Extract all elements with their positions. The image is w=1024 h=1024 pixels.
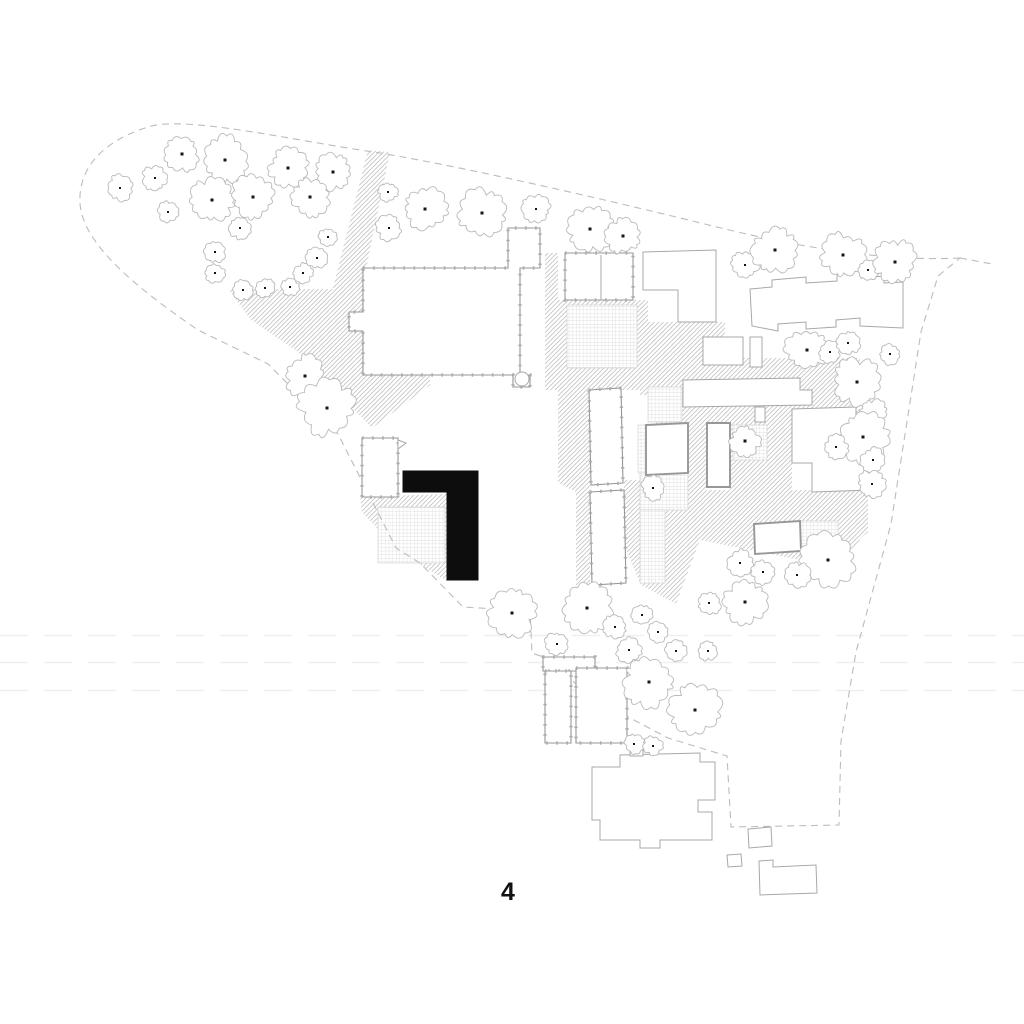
tree-trunk-dot — [332, 171, 335, 174]
tree-symbol — [698, 641, 717, 661]
tree-trunk-dot — [304, 375, 307, 378]
building-terraced-row-east — [750, 271, 903, 331]
tree-symbol — [203, 242, 225, 263]
courtyard-east-courtyard — [567, 305, 637, 368]
tree-trunk-dot — [675, 650, 677, 652]
building-northwest-small-house — [362, 438, 398, 497]
tree-trunk-dot — [744, 601, 747, 604]
tree-trunk-dot — [327, 236, 329, 238]
faint-reference-lines — [0, 636, 1024, 691]
tree-trunk-dot — [589, 228, 592, 231]
tree-trunk-dot — [326, 407, 329, 410]
building-row-house-right — [576, 668, 627, 743]
tree-trunk-dot — [154, 177, 156, 179]
tree-trunk-dot — [481, 212, 484, 215]
tree-symbol — [643, 736, 664, 756]
tree-trunk-dot — [842, 254, 845, 257]
tree-trunk-dot — [796, 574, 798, 576]
building-south-church — [592, 753, 715, 848]
tree-trunk-dot — [806, 349, 809, 352]
tree-trunk-dot — [239, 227, 241, 229]
tree-trunk-dot — [835, 446, 837, 448]
building-outbuilding-a — [748, 827, 772, 848]
tree-symbol — [205, 264, 226, 283]
tree-trunk-dot — [252, 196, 255, 199]
site-boundary-tip — [960, 258, 992, 264]
building-outbuilding-b — [727, 854, 742, 867]
courtyard-black-building-courtyard — [378, 507, 445, 563]
tree-trunk-dot — [628, 649, 630, 651]
tree-symbol — [544, 633, 568, 655]
tree-trunk-dot — [648, 681, 651, 684]
building-northwest-pennant — [398, 440, 406, 449]
tree-symbol — [233, 280, 253, 301]
tree-trunk-dot — [694, 709, 697, 712]
tree-symbol — [486, 588, 537, 638]
tree-trunk-dot — [847, 342, 849, 344]
tree-trunk-dot — [242, 289, 244, 291]
tree-symbol — [647, 621, 667, 643]
building-outbuilding-c — [759, 860, 817, 895]
tree-trunk-dot — [264, 287, 266, 289]
building-cloister-house — [646, 423, 688, 475]
tree-symbol — [157, 201, 179, 223]
tree-trunk-dot — [657, 631, 659, 633]
tree-symbol — [727, 549, 754, 578]
tree-symbol — [232, 174, 275, 221]
tree-symbol — [631, 605, 653, 624]
tree-trunk-dot — [388, 227, 390, 229]
tree-trunk-dot — [707, 650, 709, 652]
tree-symbol — [836, 332, 861, 355]
paved-area-corridor — [545, 253, 558, 390]
tree-trunk-dot — [641, 614, 643, 616]
tree-trunk-dot — [871, 483, 873, 485]
building-main-hall — [349, 228, 540, 387]
building-narrow-house — [707, 423, 730, 487]
tree-trunk-dot — [633, 743, 635, 745]
tree-trunk-dot — [309, 196, 312, 199]
courtyard-cloister-north — [648, 387, 682, 422]
tree-trunk-dot — [119, 187, 121, 189]
tree-trunk-dot — [167, 211, 169, 213]
tree-trunk-dot — [827, 559, 830, 562]
building-east-wing-l — [643, 250, 716, 322]
building-small-north-b — [750, 337, 762, 367]
building-long-bar-central — [683, 378, 812, 407]
tree-trunk-dot — [622, 235, 625, 238]
tree-symbol — [616, 636, 642, 663]
tree-symbol — [108, 174, 133, 202]
tree-symbol — [318, 229, 337, 246]
tree-trunk-dot — [287, 167, 290, 170]
tree-symbol — [189, 177, 235, 222]
tree-trunk-dot — [829, 351, 831, 353]
building-long-bar-stub — [755, 407, 765, 422]
tree-trunk-dot — [181, 153, 184, 156]
building-apse — [515, 372, 529, 386]
tree-symbol — [751, 560, 775, 586]
tree-trunk-dot — [856, 381, 859, 384]
tree-symbol — [722, 579, 769, 626]
tree-trunk-dot — [211, 199, 214, 202]
tree-trunk-dot — [302, 272, 304, 274]
tree-trunk-dot — [652, 745, 654, 747]
building-row-house-left — [545, 671, 571, 743]
tree-symbol — [698, 592, 721, 614]
tree-trunk-dot — [867, 269, 869, 271]
building-west-bar-lower — [590, 490, 626, 585]
tree-trunk-dot — [894, 261, 897, 264]
tree-symbol — [378, 183, 399, 202]
tree-trunk-dot — [556, 643, 558, 645]
tree-symbol — [375, 214, 401, 241]
tree-trunk-dot — [744, 264, 746, 266]
site-plan: 4 — [0, 0, 1024, 1024]
tree-trunk-dot — [774, 249, 777, 252]
tree-symbol — [521, 194, 551, 222]
tree-trunk-dot — [316, 257, 318, 259]
building-small-east-house — [754, 521, 801, 554]
tree-symbol — [603, 615, 626, 639]
tree-symbol — [880, 343, 900, 365]
tree-symbol — [665, 640, 688, 662]
tree-trunk-dot — [652, 487, 654, 489]
tree-trunk-dot — [214, 251, 216, 253]
building-small-north-a — [703, 337, 743, 365]
courtyard-cloister-south-strip — [640, 510, 665, 583]
figure-number-label: 4 — [501, 878, 515, 907]
tree-trunk-dot — [224, 159, 227, 162]
tree-symbol — [784, 562, 811, 589]
site-plan-drawing — [0, 0, 1024, 1024]
tree-trunk-dot — [872, 459, 874, 461]
tree-trunk-dot — [614, 626, 616, 628]
tree-trunk-dot — [214, 272, 216, 274]
tree-trunk-dot — [744, 440, 747, 443]
tree-symbol — [228, 217, 251, 239]
paved-area-west-of-bars — [558, 388, 590, 587]
tree-trunk-dot — [739, 562, 741, 564]
tree-symbol — [305, 247, 328, 268]
tree-symbol — [164, 137, 199, 173]
building-east-rooms — [565, 253, 633, 300]
tree-trunk-dot — [511, 612, 514, 615]
tree-symbol — [622, 657, 673, 710]
tree-symbol — [142, 166, 168, 191]
tree-trunk-dot — [862, 436, 865, 439]
building-west-bar-upper — [589, 388, 623, 485]
tree-trunk-dot — [289, 286, 291, 288]
tree-trunk-dot — [889, 353, 891, 355]
tree-trunk-dot — [424, 208, 427, 211]
tree-trunk-dot — [762, 571, 764, 573]
tree-trunk-dot — [387, 191, 389, 193]
tree-symbol — [405, 187, 449, 231]
tree-symbol — [457, 187, 507, 237]
tree-trunk-dot — [708, 602, 710, 604]
tree-trunk-dot — [586, 607, 589, 610]
tree-trunk-dot — [535, 208, 537, 210]
paved-area-mid-gap-1 — [688, 420, 707, 500]
